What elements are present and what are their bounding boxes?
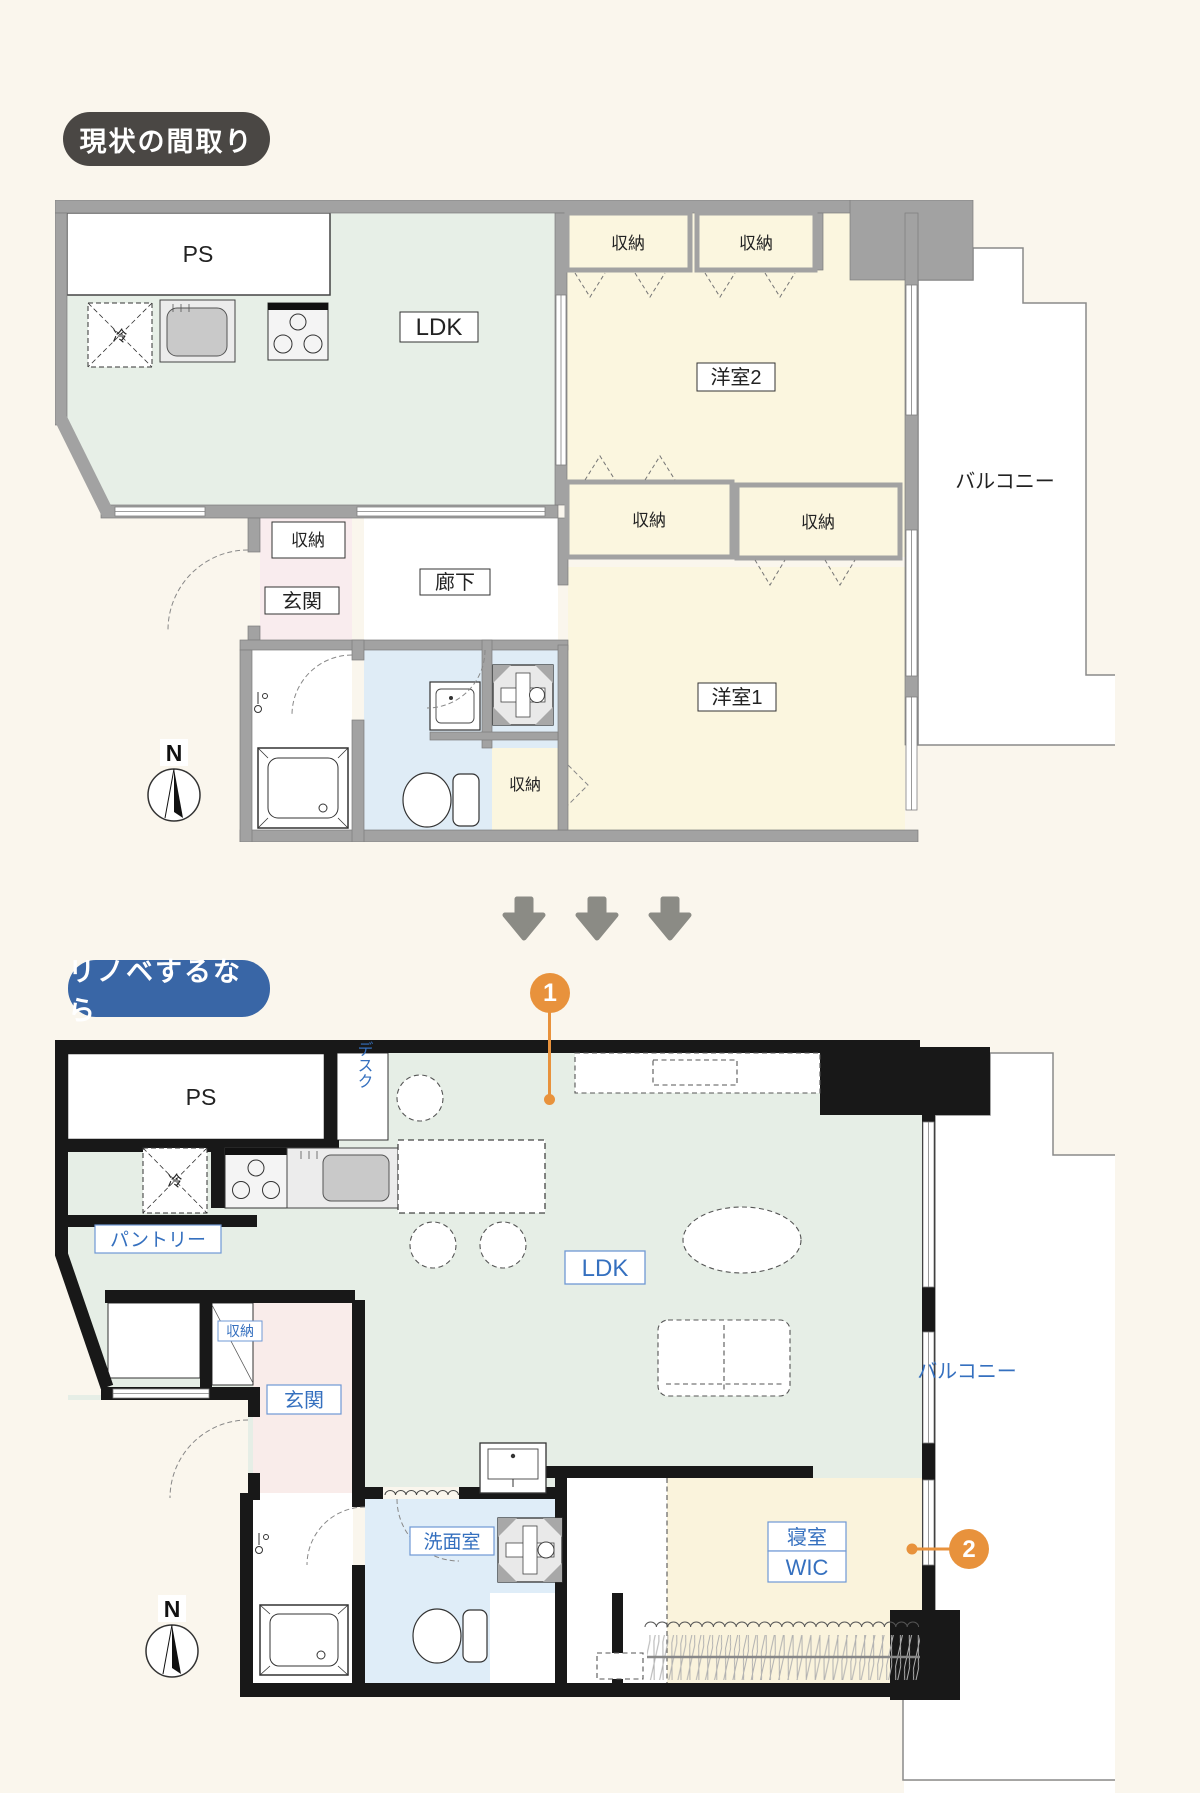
current-ldk-label: LDK — [416, 314, 463, 341]
current-sink-counter — [160, 300, 235, 362]
renovated-desk-label: デスク — [355, 1041, 373, 1089]
down-arrow-icon — [578, 899, 616, 938]
marker-1-dot — [544, 1094, 555, 1105]
renovated-washroom-label: 洗面室 — [423, 1531, 480, 1553]
current-plan-badge: 現状の間取り — [63, 112, 270, 166]
renovated-ldk-label: LDK — [582, 1255, 629, 1282]
current-closet-label-6: 収納 — [509, 776, 541, 794]
current-closet-label-2: 収納 — [739, 234, 773, 253]
renovated-bathtub — [260, 1605, 348, 1675]
current-plan-badge-label: 現状の間取り — [80, 120, 254, 159]
renovated-fridge-label: 冷 — [167, 1173, 182, 1190]
renovated-pantry-label: パントリー — [110, 1230, 206, 1251]
marker-2-number: 2 — [962, 1536, 975, 1563]
renovated-wic-label: WIC — [786, 1555, 829, 1580]
current-balcony-label: バルコニー — [955, 471, 1055, 493]
transition-arrows — [498, 896, 718, 946]
current-floor-plan: N PS 冷 LDK 収納 収納 収納 収納 洋室2 洋室1 廊下 玄関 収納 … — [55, 200, 1115, 842]
renovated-accordion-curtain — [385, 1491, 459, 1496]
current-room2-label: 洋室2 — [710, 366, 761, 389]
current-closet-label-3: 収納 — [632, 511, 666, 530]
renovated-washing-machine — [498, 1518, 562, 1582]
renovated-compass-n-label: N — [164, 1596, 181, 1622]
current-ps-label: PS — [183, 241, 214, 267]
renovated-plan-badge: リノベするなら — [68, 960, 270, 1017]
down-arrow-icon — [505, 899, 543, 938]
current-closet-label-5: 収納 — [291, 531, 325, 550]
renovated-floor-plan: N 2 PS デスク 冷 パントリー 収納 LDK 玄関 洗面室 寝室 — [55, 1035, 1115, 1793]
current-toilet — [403, 773, 479, 827]
current-closet-label-1: 収納 — [611, 234, 645, 253]
renovated-ps-label: PS — [186, 1084, 217, 1110]
current-hallway-label: 廊下 — [435, 571, 475, 594]
current-compass: N — [148, 739, 200, 821]
renovated-washbasin — [480, 1443, 546, 1493]
renovated-balcony-label: バルコニー — [917, 1361, 1017, 1383]
renovated-plan-badge-label: リノベするなら — [68, 950, 270, 1028]
renovated-toilet — [413, 1609, 487, 1663]
marker-1-badge: 1 — [530, 973, 570, 1013]
renovated-sink-counter — [287, 1148, 398, 1208]
renovated-stove — [225, 1148, 287, 1208]
current-compass-n-label: N — [166, 740, 183, 766]
current-washbasin — [430, 682, 480, 730]
current-fridge-label: 冷 — [112, 328, 127, 345]
current-balcony-outline — [918, 248, 1115, 745]
current-bathtub — [258, 748, 348, 828]
renovated-island-counter — [398, 1140, 545, 1213]
marker-1-number: 1 — [543, 979, 557, 1008]
current-washing-machine — [493, 665, 553, 725]
current-room1-label: 洋室1 — [711, 686, 762, 709]
renovated-closet-label: 収納 — [226, 1323, 254, 1339]
page: 現状の間取り — [0, 0, 1200, 1793]
current-stove — [268, 303, 328, 360]
down-arrow-icon — [651, 899, 689, 938]
renovated-bedroom-label: 寝室 — [787, 1526, 827, 1549]
current-closet-label-4: 収納 — [801, 513, 835, 532]
renovated-genkan-label: 玄関 — [284, 1389, 324, 1412]
marker-1-line — [548, 1011, 551, 1096]
current-genkan-label: 玄関 — [282, 590, 322, 613]
